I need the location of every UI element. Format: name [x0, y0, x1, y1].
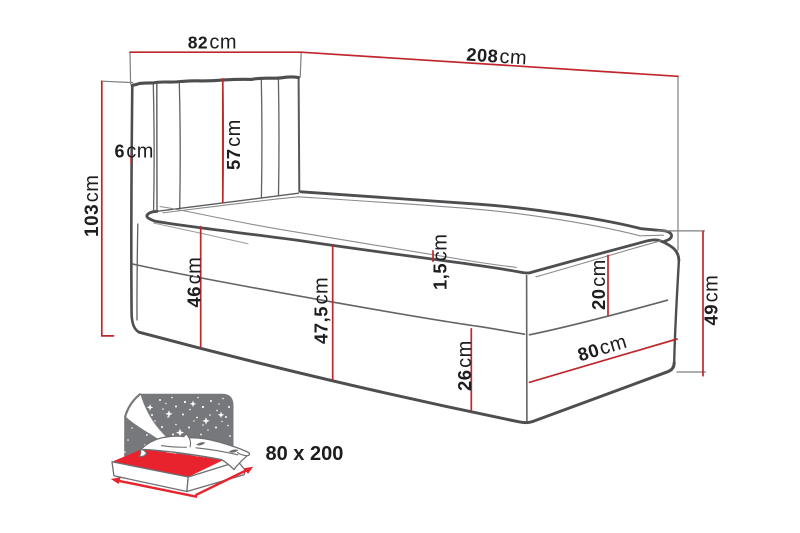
svg-text:47,5cm: 47,5cm: [311, 277, 333, 344]
svg-text:1,5cm: 1,5cm: [430, 234, 452, 290]
svg-text:6cm: 6cm: [115, 140, 154, 162]
svg-text:82cm: 82cm: [188, 32, 237, 54]
svg-text:208cm: 208cm: [466, 44, 528, 70]
svg-text:49cm: 49cm: [701, 275, 723, 326]
svg-text:26cm: 26cm: [454, 340, 476, 391]
svg-text:57cm: 57cm: [223, 119, 245, 170]
svg-text:20cm: 20cm: [588, 259, 610, 310]
svg-text:80 x 200: 80 x 200: [266, 443, 344, 465]
svg-text:46cm: 46cm: [183, 257, 205, 308]
svg-text:103cm: 103cm: [81, 175, 103, 237]
